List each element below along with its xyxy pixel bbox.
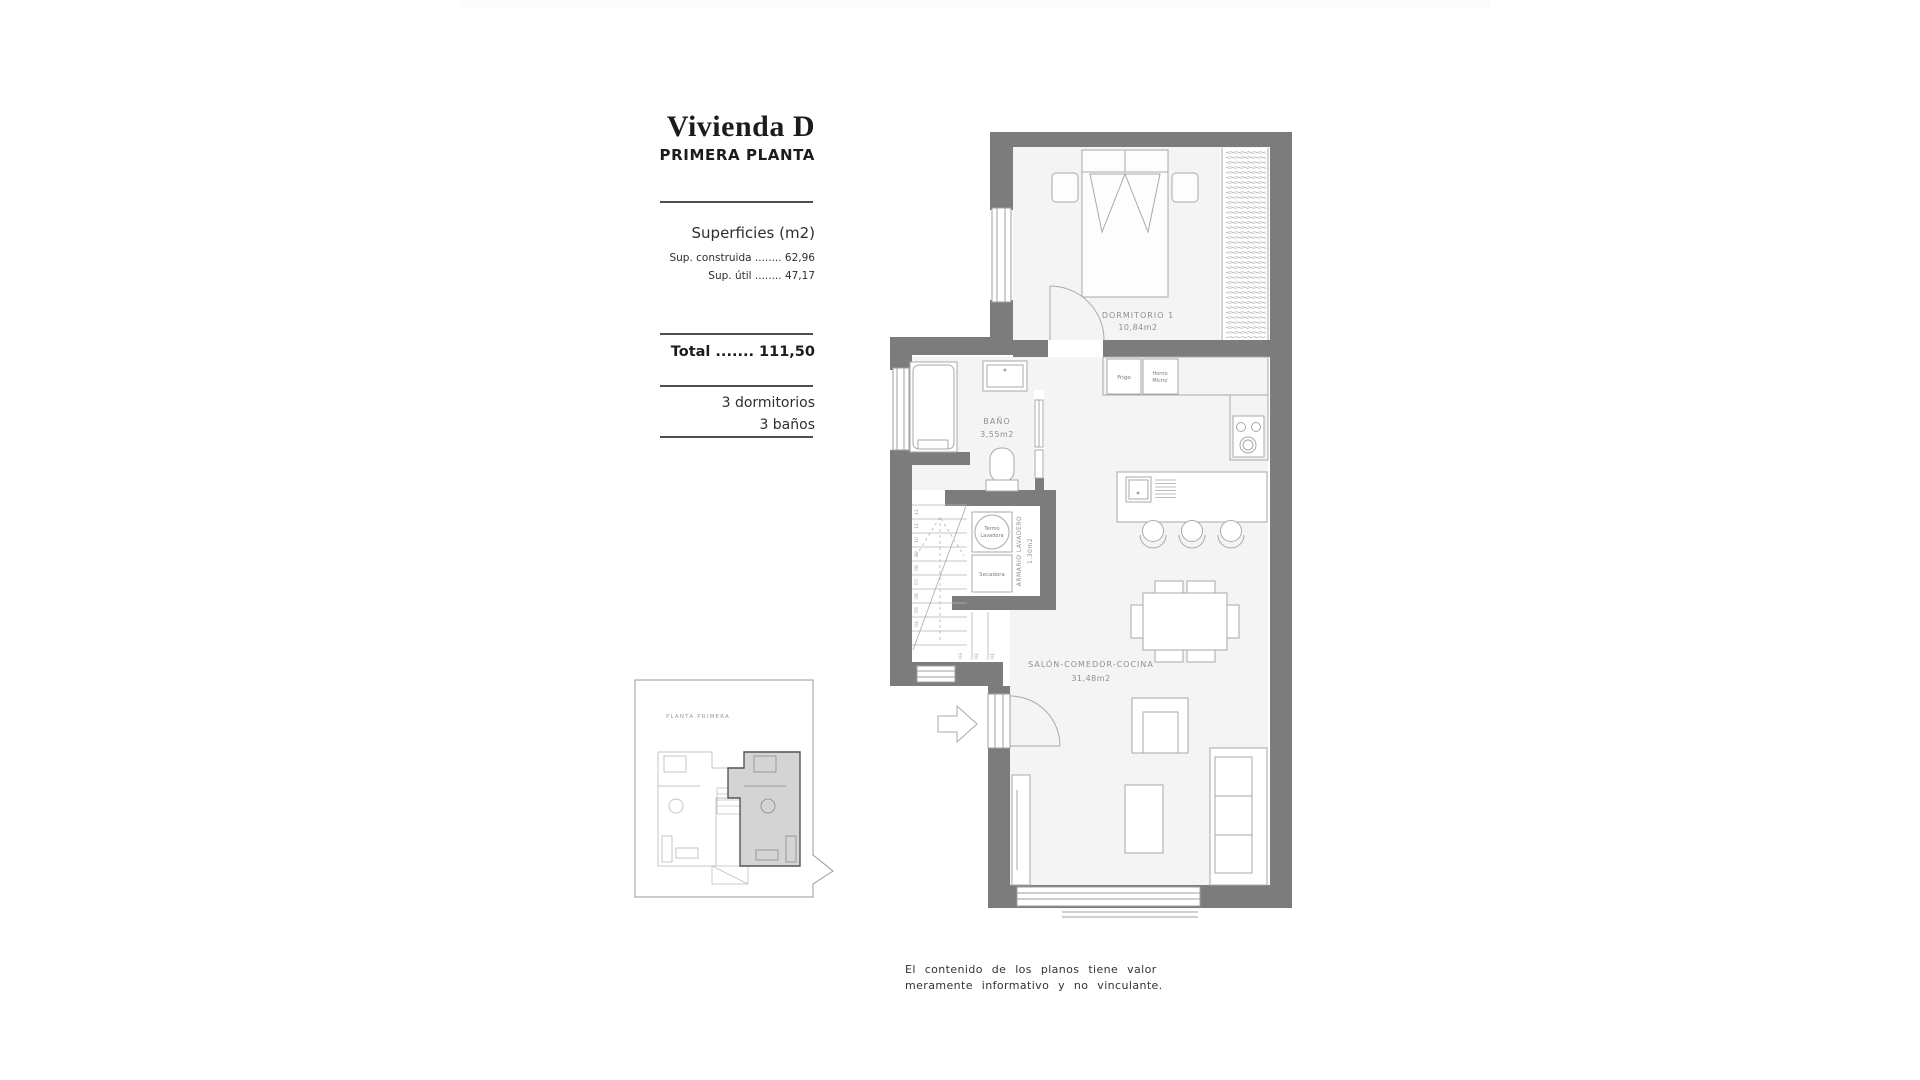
dining-table bbox=[1143, 593, 1227, 650]
svg-text:03: 03 bbox=[958, 653, 964, 659]
svg-text:07: 07 bbox=[914, 579, 920, 585]
frigo-label: Frigo bbox=[1117, 375, 1131, 381]
toilet-tank bbox=[986, 480, 1018, 491]
horno-label-1: Horno bbox=[1152, 371, 1167, 377]
room-area-salon: 31,48m2 bbox=[1071, 674, 1110, 683]
sofa bbox=[1210, 748, 1267, 885]
svg-text:02: 02 bbox=[974, 653, 980, 659]
minimap-label: PLANTA PRIMERA bbox=[666, 714, 730, 720]
horno-label-2: Micro/ bbox=[1152, 378, 1167, 384]
chair bbox=[1227, 605, 1239, 638]
disclaimer: El contenido de los planos tiene valor m… bbox=[905, 962, 1163, 994]
svg-text:12: 12 bbox=[914, 509, 920, 515]
nightstand-right bbox=[1172, 173, 1198, 202]
room-area-bano: 3,55m2 bbox=[980, 430, 1014, 439]
stool bbox=[1143, 521, 1164, 542]
room-label-salon: SALÓN-COMEDOR-COCINA bbox=[1028, 658, 1154, 669]
room-area-armario: 1,30m2 bbox=[1027, 538, 1034, 564]
chair bbox=[1187, 581, 1215, 593]
tv-bench bbox=[1012, 775, 1030, 885]
chair bbox=[1187, 650, 1215, 662]
svg-text:06: 06 bbox=[914, 593, 920, 599]
stool bbox=[1221, 521, 1242, 542]
armchair bbox=[1132, 698, 1188, 753]
room-label-armario: ARMARIO LAVADERO bbox=[1016, 516, 1023, 586]
disclaimer-line-2: meramente informativo y no vinculante. bbox=[905, 978, 1163, 994]
room-label-bano: BAÑO bbox=[983, 416, 1010, 426]
nightstand-left bbox=[1052, 173, 1078, 202]
svg-text:08: 08 bbox=[914, 565, 920, 571]
svg-text:05: 05 bbox=[914, 607, 920, 613]
termo-label-1: Termo bbox=[983, 526, 999, 532]
water-heater-box bbox=[972, 512, 1012, 552]
room-label-dormitorio: DORMITORIO 1 bbox=[1102, 311, 1174, 320]
chair bbox=[1131, 605, 1143, 638]
floor-plan-svg: DORMITORIO 1 10,84m2 BAÑO 3,55m2 bbox=[0, 0, 1920, 1080]
laundry-closet bbox=[972, 512, 1012, 592]
svg-text:11: 11 bbox=[914, 523, 920, 529]
chair bbox=[1155, 650, 1183, 662]
toilet bbox=[990, 448, 1014, 482]
entry-arrow-icon bbox=[938, 706, 977, 742]
svg-text:10: 10 bbox=[914, 537, 920, 543]
coffee-table bbox=[1125, 785, 1163, 853]
stove bbox=[1233, 416, 1264, 457]
bathtub bbox=[910, 362, 957, 452]
svg-text:09: 09 bbox=[914, 551, 920, 557]
secadora-label: Secadora bbox=[979, 572, 1005, 578]
page: Vivienda D PRIMERA PLANTA Superficies (m… bbox=[0, 0, 1920, 1080]
chair bbox=[1155, 581, 1183, 593]
svg-text:04: 04 bbox=[914, 621, 920, 627]
room-area-dormitorio: 10,84m2 bbox=[1118, 323, 1157, 332]
dining-set bbox=[1131, 581, 1239, 662]
disclaimer-line-1: El contenido de los planos tiene valor bbox=[905, 962, 1163, 978]
termo-label-2: Lavadora bbox=[980, 533, 1003, 539]
svg-text:01: 01 bbox=[990, 653, 996, 659]
stool bbox=[1182, 521, 1203, 542]
minimap: PLANTA PRIMERA bbox=[635, 680, 833, 897]
